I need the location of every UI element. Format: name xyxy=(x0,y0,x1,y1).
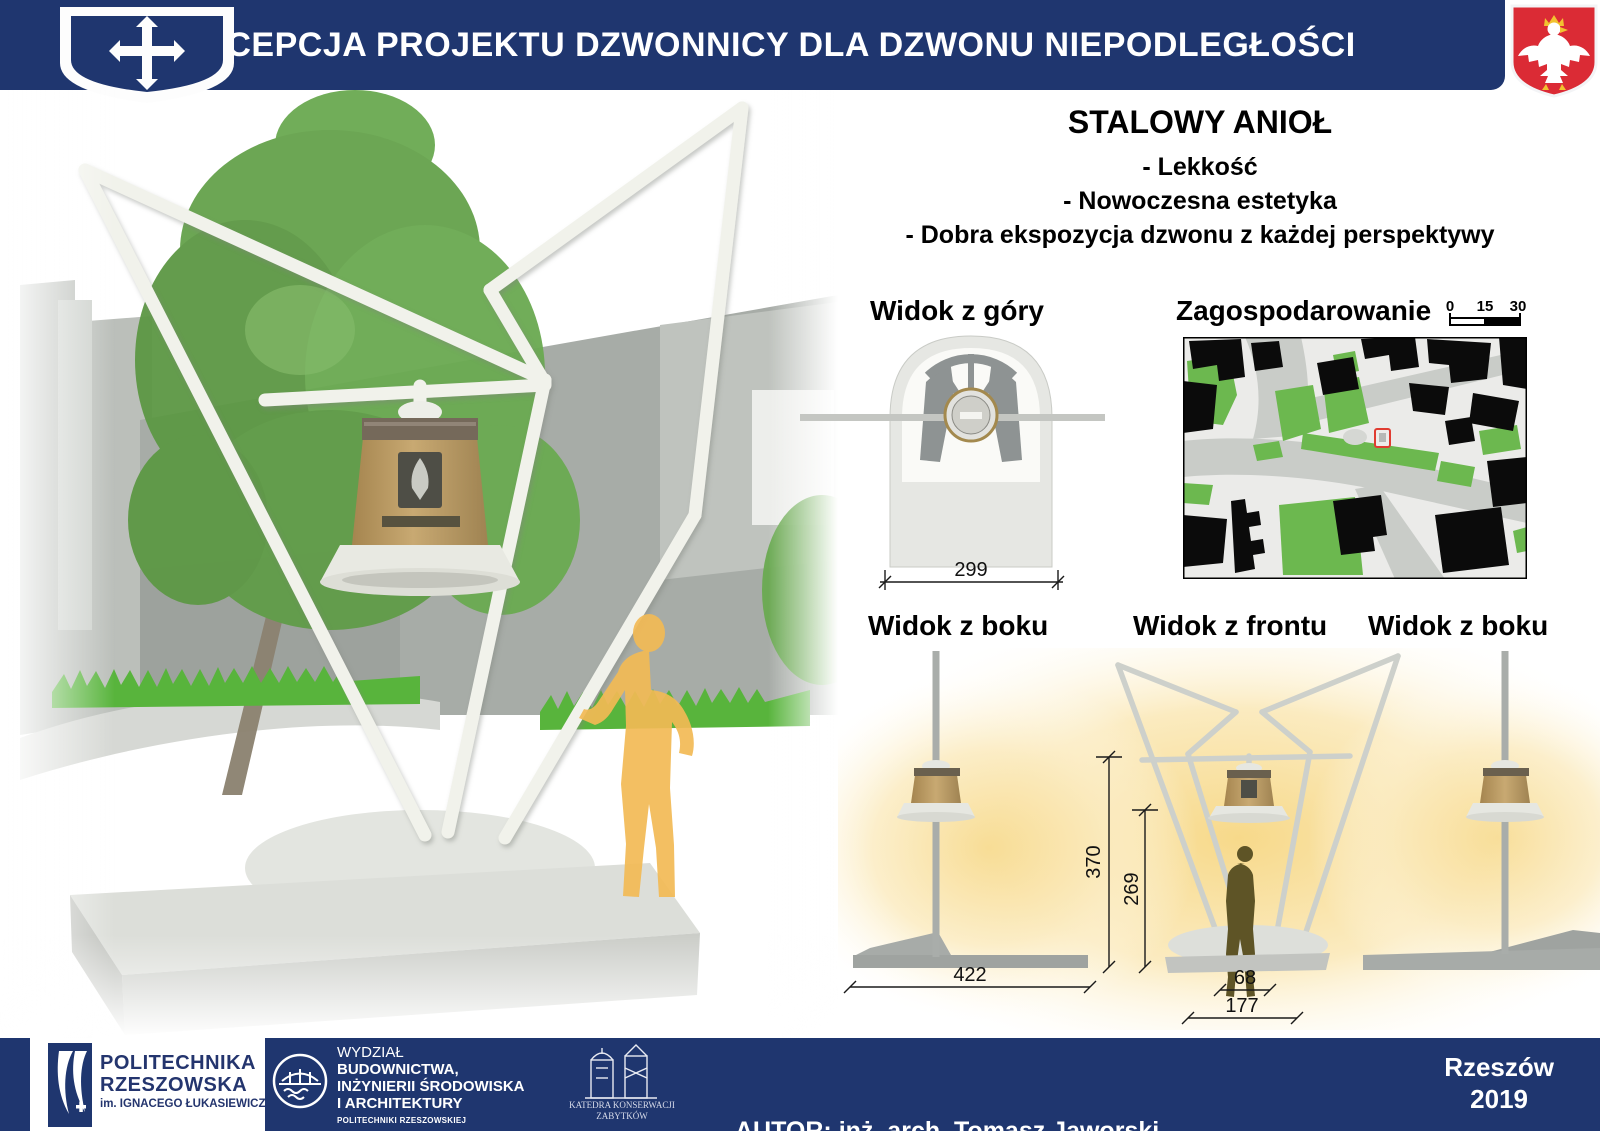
drawing-site-plan xyxy=(1183,337,1527,579)
svg-text:30: 30 xyxy=(1510,298,1527,315)
footer-left-strip xyxy=(0,1038,30,1131)
presentation-board: KONCEPCJA PROJEKTU DZWONNICY DLA DZWONU … xyxy=(0,0,1600,1131)
year: 2019 xyxy=(1444,1083,1554,1115)
map-scale-bar: 0 15 30 xyxy=(1440,296,1532,332)
heading-side-view-left: Widok z boku xyxy=(868,610,1048,642)
faculty-logo-icon xyxy=(271,1052,329,1110)
author-line: AUTOR: inż. arch. Tomasz Jaworski xyxy=(735,1115,1343,1131)
dim-269-label: 269 xyxy=(1121,872,1143,905)
university-name: POLITECHNIKA RZESZOWSKA xyxy=(100,1052,256,1096)
faculty-name: WYDZIAŁ BUDOWNICTWA, INŻYNIERII ŚRODOWIS… xyxy=(337,1044,525,1129)
heading-front-view: Widok z frontu xyxy=(1133,610,1327,642)
department-logo-icon xyxy=(583,1044,661,1100)
dim-422-label: 422 xyxy=(953,964,986,986)
politechnika-rzeszowska-logo-icon xyxy=(48,1043,92,1127)
dim-177-label: 177 xyxy=(1225,995,1258,1017)
concept-feature: - Lekkość xyxy=(810,150,1590,184)
render-perspective-view xyxy=(0,90,838,1038)
svg-text:15: 15 xyxy=(1477,298,1494,315)
drawing-elevations: 422 370 269 68 177 xyxy=(838,648,1600,1030)
city-year-block: Rzeszów 2019 xyxy=(1444,1051,1554,1115)
heading-side-view-right: Widok z boku xyxy=(1368,610,1548,642)
dim-68-label: 68 xyxy=(1234,967,1256,989)
svg-text:0: 0 xyxy=(1446,298,1454,315)
concept-feature-list: - Lekkość - Nowoczesna estetyka - Dobra … xyxy=(810,150,1590,252)
department-name: KATEDRA KONSERWACJI ZABYTKÓW xyxy=(557,1100,687,1122)
university-subtitle: im. IGNACEGO ŁUKASIEWICZA xyxy=(100,1098,274,1110)
dim-370-label: 370 xyxy=(1083,845,1105,878)
heading-site-plan: Zagospodarowanie xyxy=(1176,295,1431,327)
credits-block: AUTOR: inż. arch. Tomasz Jaworski PROMOT… xyxy=(735,1051,1343,1131)
map-plaza xyxy=(1343,429,1367,445)
city: Rzeszów xyxy=(1444,1051,1554,1083)
poland-coat-of-arms-icon xyxy=(1510,4,1598,98)
heading-top-view: Widok z góry xyxy=(870,295,1044,327)
footer-bar: POLITECHNIKA RZESZOWSKA im. IGNACEGO ŁUK… xyxy=(0,1038,1600,1131)
footer-blue-panel: WYDZIAŁ BUDOWNICTWA, INŻYNIERII ŚRODOWIS… xyxy=(265,1038,1600,1131)
dim-299-label: 299 xyxy=(954,559,987,581)
concept-feature: - Nowoczesna estetyka xyxy=(810,184,1590,218)
render-fade-left xyxy=(0,90,115,1038)
concept-title: STALOWY ANIOŁ xyxy=(830,104,1570,141)
concept-feature: - Dobra ekspozycja dzwonu z każdej persp… xyxy=(810,218,1590,252)
render-fade-bottom xyxy=(0,935,838,1038)
drawing-top-view: 299 xyxy=(800,330,1115,602)
